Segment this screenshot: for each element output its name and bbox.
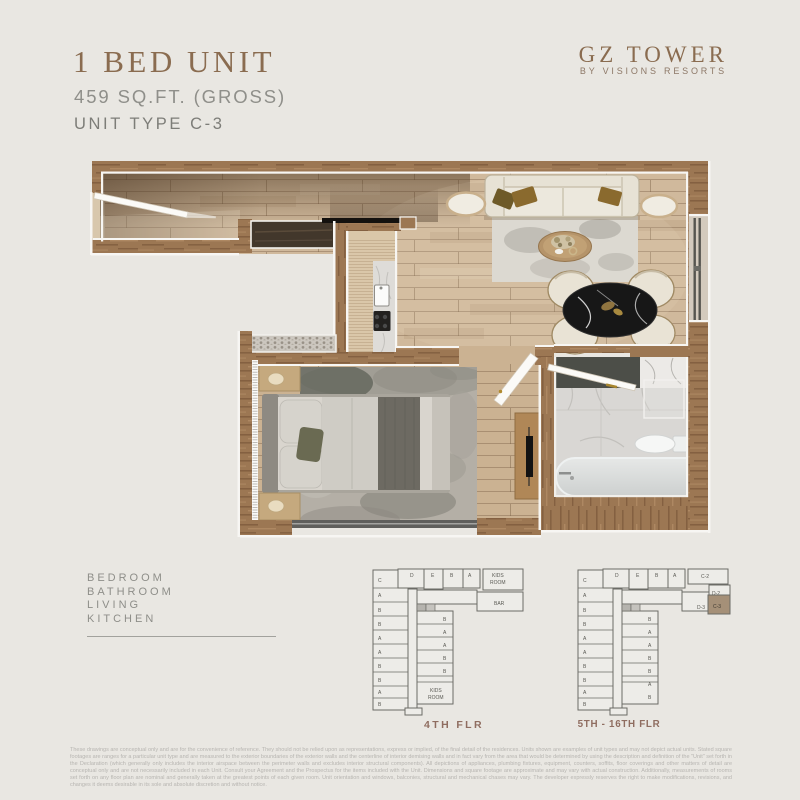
svg-text:D-3: D-3 — [697, 605, 705, 611]
svg-text:KIDS: KIDS — [492, 573, 504, 579]
svg-text:C: C — [378, 578, 382, 584]
svg-text:C-2: C-2 — [701, 574, 709, 580]
svg-text:ROOM: ROOM — [428, 695, 444, 701]
svg-text:D: D — [410, 573, 414, 579]
svg-text:ROOM: ROOM — [490, 580, 506, 586]
svg-text:C: C — [583, 578, 587, 584]
svg-text:BAR: BAR — [494, 601, 505, 607]
svg-text:KIDS: KIDS — [430, 688, 442, 694]
svg-text:D-2: D-2 — [712, 591, 720, 597]
svg-text:D: D — [615, 573, 619, 579]
svg-text:C-3: C-3 — [713, 604, 721, 610]
